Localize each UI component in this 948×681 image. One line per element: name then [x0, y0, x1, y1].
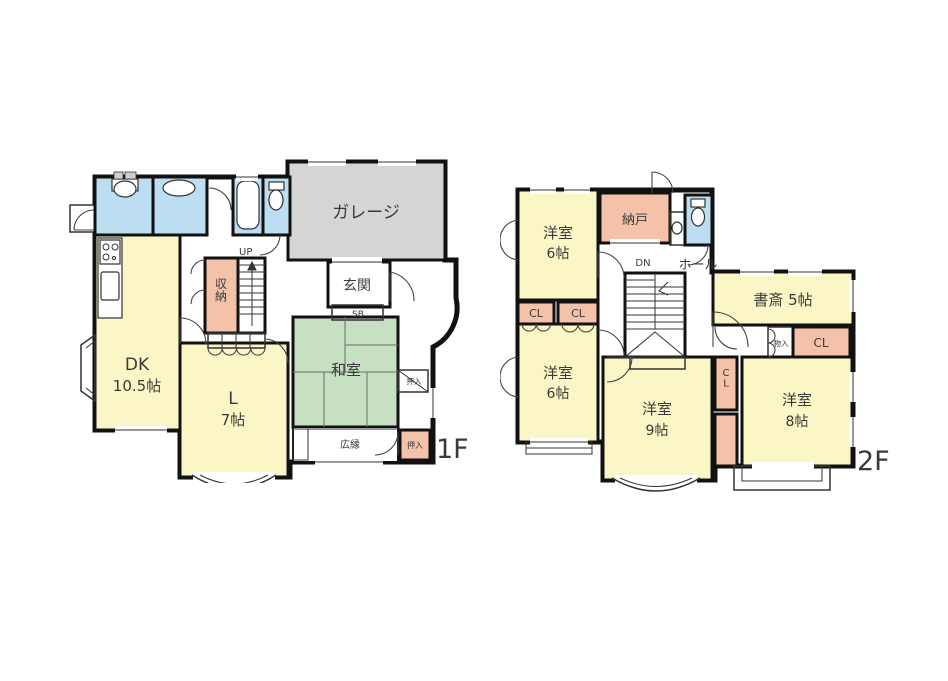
label-oshiire-side: 押入 [407, 376, 422, 386]
floorplan-2f: 洋室 6帖 納戸 DN ホール 書斎 5帖 物入 CL CL CL CL 洋室 … [500, 162, 890, 492]
washroom-window-b [125, 172, 136, 179]
kitchen-sink-icon [101, 272, 119, 300]
label-nando: 納戸 [622, 213, 648, 228]
label-dn: DN [635, 258, 650, 269]
label-monoire: 物入 [774, 338, 789, 348]
label-up: UP [239, 247, 252, 258]
label-yoshitsu-sw: 洋室 [543, 364, 573, 382]
label-shuno: 収納 [215, 277, 227, 304]
floor-label-1f: 1F [436, 434, 467, 465]
label-yoshitsu-s-size: 9帖 [646, 423, 669, 439]
label-cl-mid: CL [723, 368, 730, 390]
label-yoshitsu-sw-size: 6帖 [547, 386, 570, 402]
label-living: L [228, 389, 238, 409]
label-shosai: 書斎 5帖 [753, 291, 812, 309]
label-cl-east: CL [813, 336, 828, 350]
room-yoshitsu-se [742, 357, 852, 466]
label-yoshitsu-nw: 洋室 [543, 224, 573, 242]
bay-window-living [192, 472, 276, 483]
label-garage: ガレージ [332, 203, 400, 223]
label-washitsu: 和室 [331, 361, 361, 379]
washbasin-icon [112, 179, 138, 197]
label-yoshitsu-se-size: 8帖 [786, 414, 809, 430]
toilet-2f-icon [691, 199, 705, 226]
room-yoshitsu-sw [518, 324, 598, 442]
label-yoshitsu-nw-size: 6帖 [547, 246, 570, 262]
label-dk-size: 10.5帖 [113, 377, 161, 395]
label-dk: DK [125, 355, 150, 375]
label-living-size: 7帖 [221, 411, 246, 429]
balcony-se [734, 462, 830, 490]
label-cl-nw-a: CL [529, 307, 544, 320]
bathtub-icon [237, 181, 259, 229]
closet-mid-lower [715, 414, 737, 466]
label-sb: SB [352, 310, 364, 320]
laundry-basin-icon [163, 180, 195, 196]
label-cl-nw-b: CL [571, 307, 586, 320]
room-yoshitsu-s [603, 357, 712, 480]
label-genkan: 玄関 [343, 277, 371, 294]
floorplan-page: { "document_type": "floor-plan", "colors… [0, 0, 948, 681]
window-box-sw [526, 438, 592, 454]
room-yoshitsu-nw [518, 190, 598, 300]
room-living [180, 343, 288, 477]
floorplan-1f: ガレージ 玄関 SB UP 収納 DK 10.5帖 L 7帖 和室 広縁 押入 … [62, 148, 467, 483]
floor-label-2f: 2F [857, 446, 890, 477]
label-yoshitsu-s: 洋室 [642, 400, 672, 418]
kitchen-counter [98, 238, 122, 318]
washroom-window-a [114, 172, 123, 179]
stove-icon [100, 240, 120, 264]
label-oshiire-corner: 押入 [407, 440, 423, 450]
label-yoshitsu-se: 洋室 [782, 391, 812, 409]
label-hiroen: 広縁 [340, 438, 360, 451]
basin-2f-icon [672, 222, 682, 234]
label-hall: ホール [678, 258, 717, 273]
bay-window-s [612, 475, 700, 491]
toilet-1f-icon [269, 182, 284, 210]
